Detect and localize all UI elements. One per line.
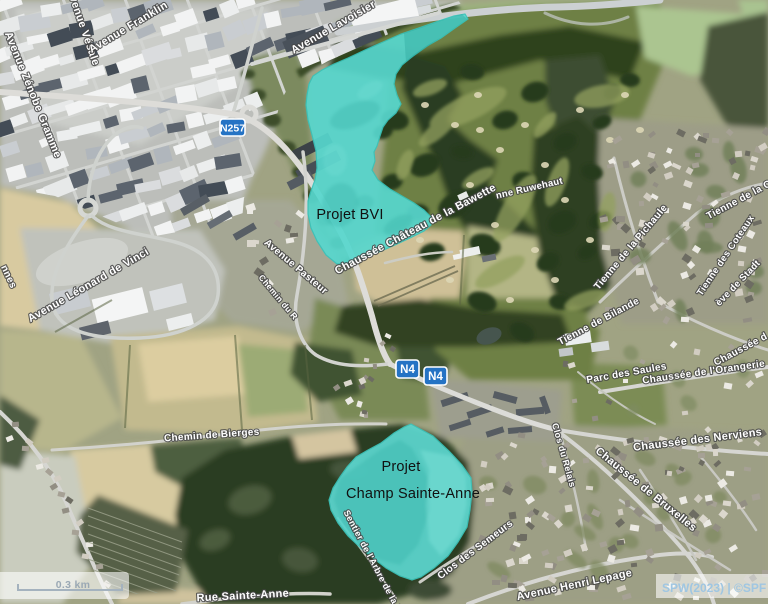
svg-text:N4: N4: [428, 371, 443, 383]
svg-text:N4: N4: [400, 364, 415, 376]
svg-text:N257: N257: [220, 122, 245, 134]
svg-text:Champ Sainte-Anne: Champ Sainte-Anne: [346, 486, 480, 502]
svg-text:0.3 km: 0.3 km: [56, 579, 91, 591]
svg-text:SPW(2023) | ©SPF F: SPW(2023) | ©SPF F: [662, 581, 768, 595]
svg-text:Projet BVI: Projet BVI: [316, 207, 383, 223]
svg-text:Projet: Projet: [381, 459, 420, 475]
